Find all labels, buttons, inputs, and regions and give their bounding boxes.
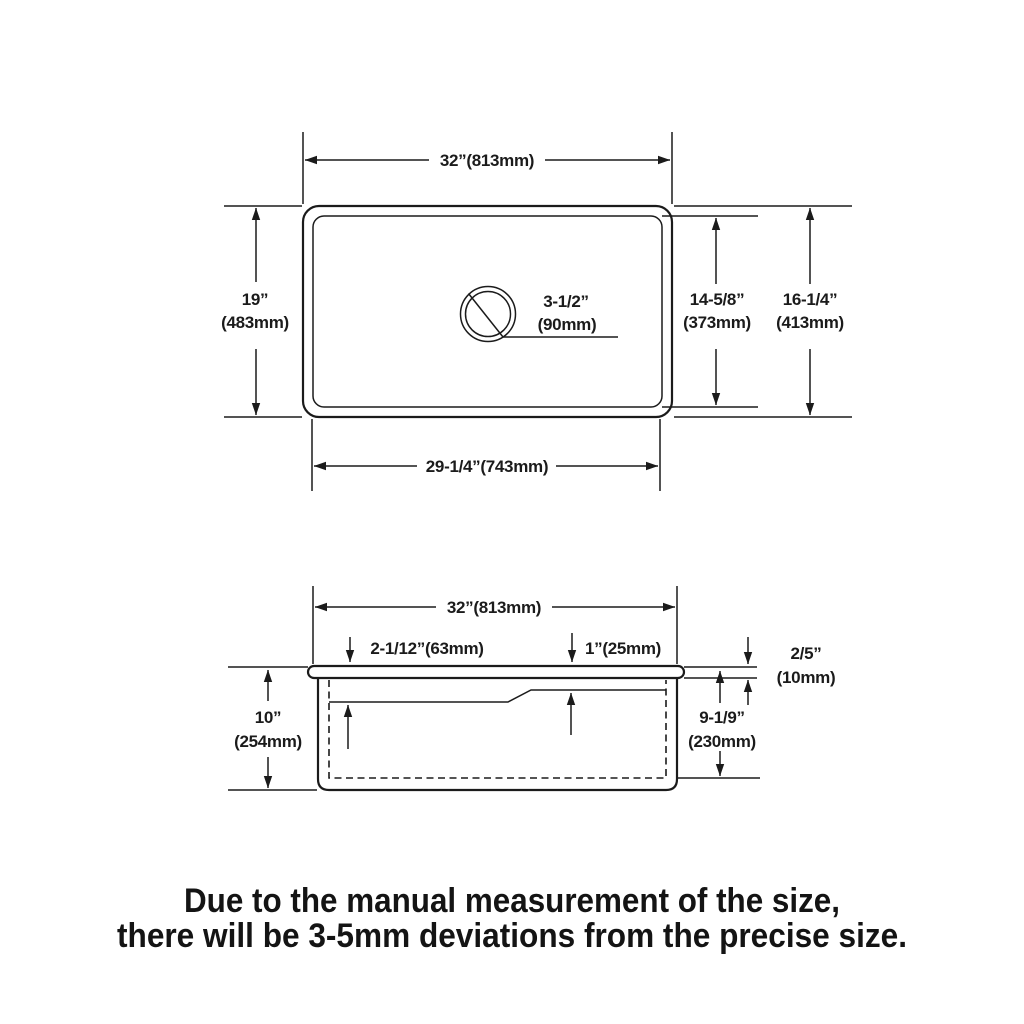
sink-dimension-diagram: 3-1/2” (90mm) 32”(813mm) 19” (483mm) 14-… bbox=[0, 0, 1024, 1024]
drain-size-label-mm: (90mm) bbox=[538, 315, 597, 334]
overall-depth-side-label-mm: (254mm) bbox=[234, 732, 302, 751]
side-view: 32”(813mm) 2-1/12”(63mm) 1”(25mm) 2/5” (… bbox=[228, 586, 835, 790]
bowl-depth-label-in: 9-1/9” bbox=[699, 708, 744, 727]
sink-bowl-edge bbox=[313, 216, 662, 407]
measurement-note: Due to the manual measurement of the siz… bbox=[117, 882, 907, 955]
left-step-depth-label: 2-1/12”(63mm) bbox=[370, 639, 483, 658]
sink-rim-bar bbox=[308, 666, 684, 678]
bowl-front-back-label-in: 14-5/8” bbox=[690, 290, 745, 309]
top-view: 3-1/2” (90mm) 32”(813mm) 19” (483mm) 14-… bbox=[221, 132, 852, 491]
rim-thickness-label-in: 2/5” bbox=[791, 644, 822, 663]
rim-front-back-label-in: 16-1/4” bbox=[783, 290, 838, 309]
overall-depth-side-label-in: 10” bbox=[255, 708, 282, 727]
rim-front-back-label-mm: (413mm) bbox=[776, 313, 844, 332]
bowl-depth-label-mm: (230mm) bbox=[688, 732, 756, 751]
bowl-length-label: 29-1/4”(743mm) bbox=[426, 457, 548, 476]
sink-outer-edge bbox=[303, 206, 672, 417]
overall-depth-label-mm: (483mm) bbox=[221, 313, 289, 332]
sink-dimension-diagram-page: 3-1/2” (90mm) 32”(813mm) 19” (483mm) 14-… bbox=[0, 0, 1024, 1024]
sink-body-outline bbox=[318, 678, 677, 790]
right-step-depth-label: 1”(25mm) bbox=[585, 639, 661, 658]
drain-size-label-in: 3-1/2” bbox=[543, 292, 588, 311]
bowl-front-back-label-mm: (373mm) bbox=[683, 313, 751, 332]
overall-depth-label-in: 19” bbox=[242, 290, 269, 309]
side-overall-width-label: 32”(813mm) bbox=[447, 598, 541, 617]
note-line-1: Due to the manual measurement of the siz… bbox=[184, 882, 840, 920]
rim-thickness-label-mm: (10mm) bbox=[777, 668, 836, 687]
overall-width-label: 32”(813mm) bbox=[440, 151, 534, 170]
note-line-2: there will be 3-5mm deviations from the … bbox=[117, 917, 907, 955]
